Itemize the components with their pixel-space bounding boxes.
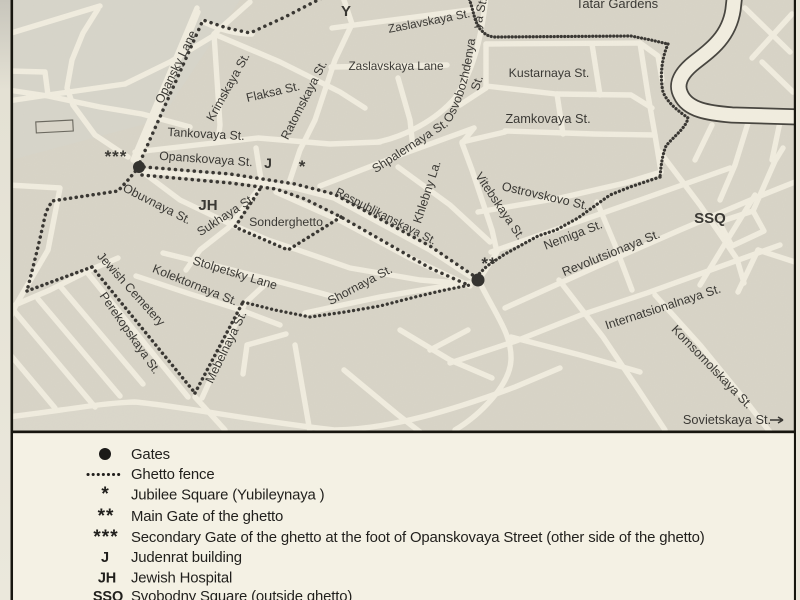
svg-text:***: *** <box>93 527 118 548</box>
svg-text:Gates: Gates <box>131 447 170 463</box>
svg-text:Judenrat building: Judenrat building <box>131 550 242 566</box>
svg-text:SSQ: SSQ <box>93 589 123 600</box>
svg-text:Secondary Gate of the ghetto a: Secondary Gate of the ghetto at the foot… <box>131 530 705 546</box>
svg-text:Ghetto fence: Ghetto fence <box>131 467 214 483</box>
svg-text:J: J <box>101 550 109 566</box>
svg-text:**: ** <box>98 506 115 527</box>
svg-text:JH: JH <box>98 571 116 587</box>
svg-text:Jubilee Square (Yubileynaya ): Jubilee Square (Yubileynaya ) <box>131 488 325 504</box>
svg-text:Svobodny Square (outside ghett: Svobodny Square (outside ghetto) <box>131 589 352 600</box>
svg-text:Jewish Hospital: Jewish Hospital <box>131 571 232 587</box>
svg-text:*: * <box>101 484 109 505</box>
svg-text:Main Gate of the ghetto: Main Gate of the ghetto <box>131 509 283 525</box>
